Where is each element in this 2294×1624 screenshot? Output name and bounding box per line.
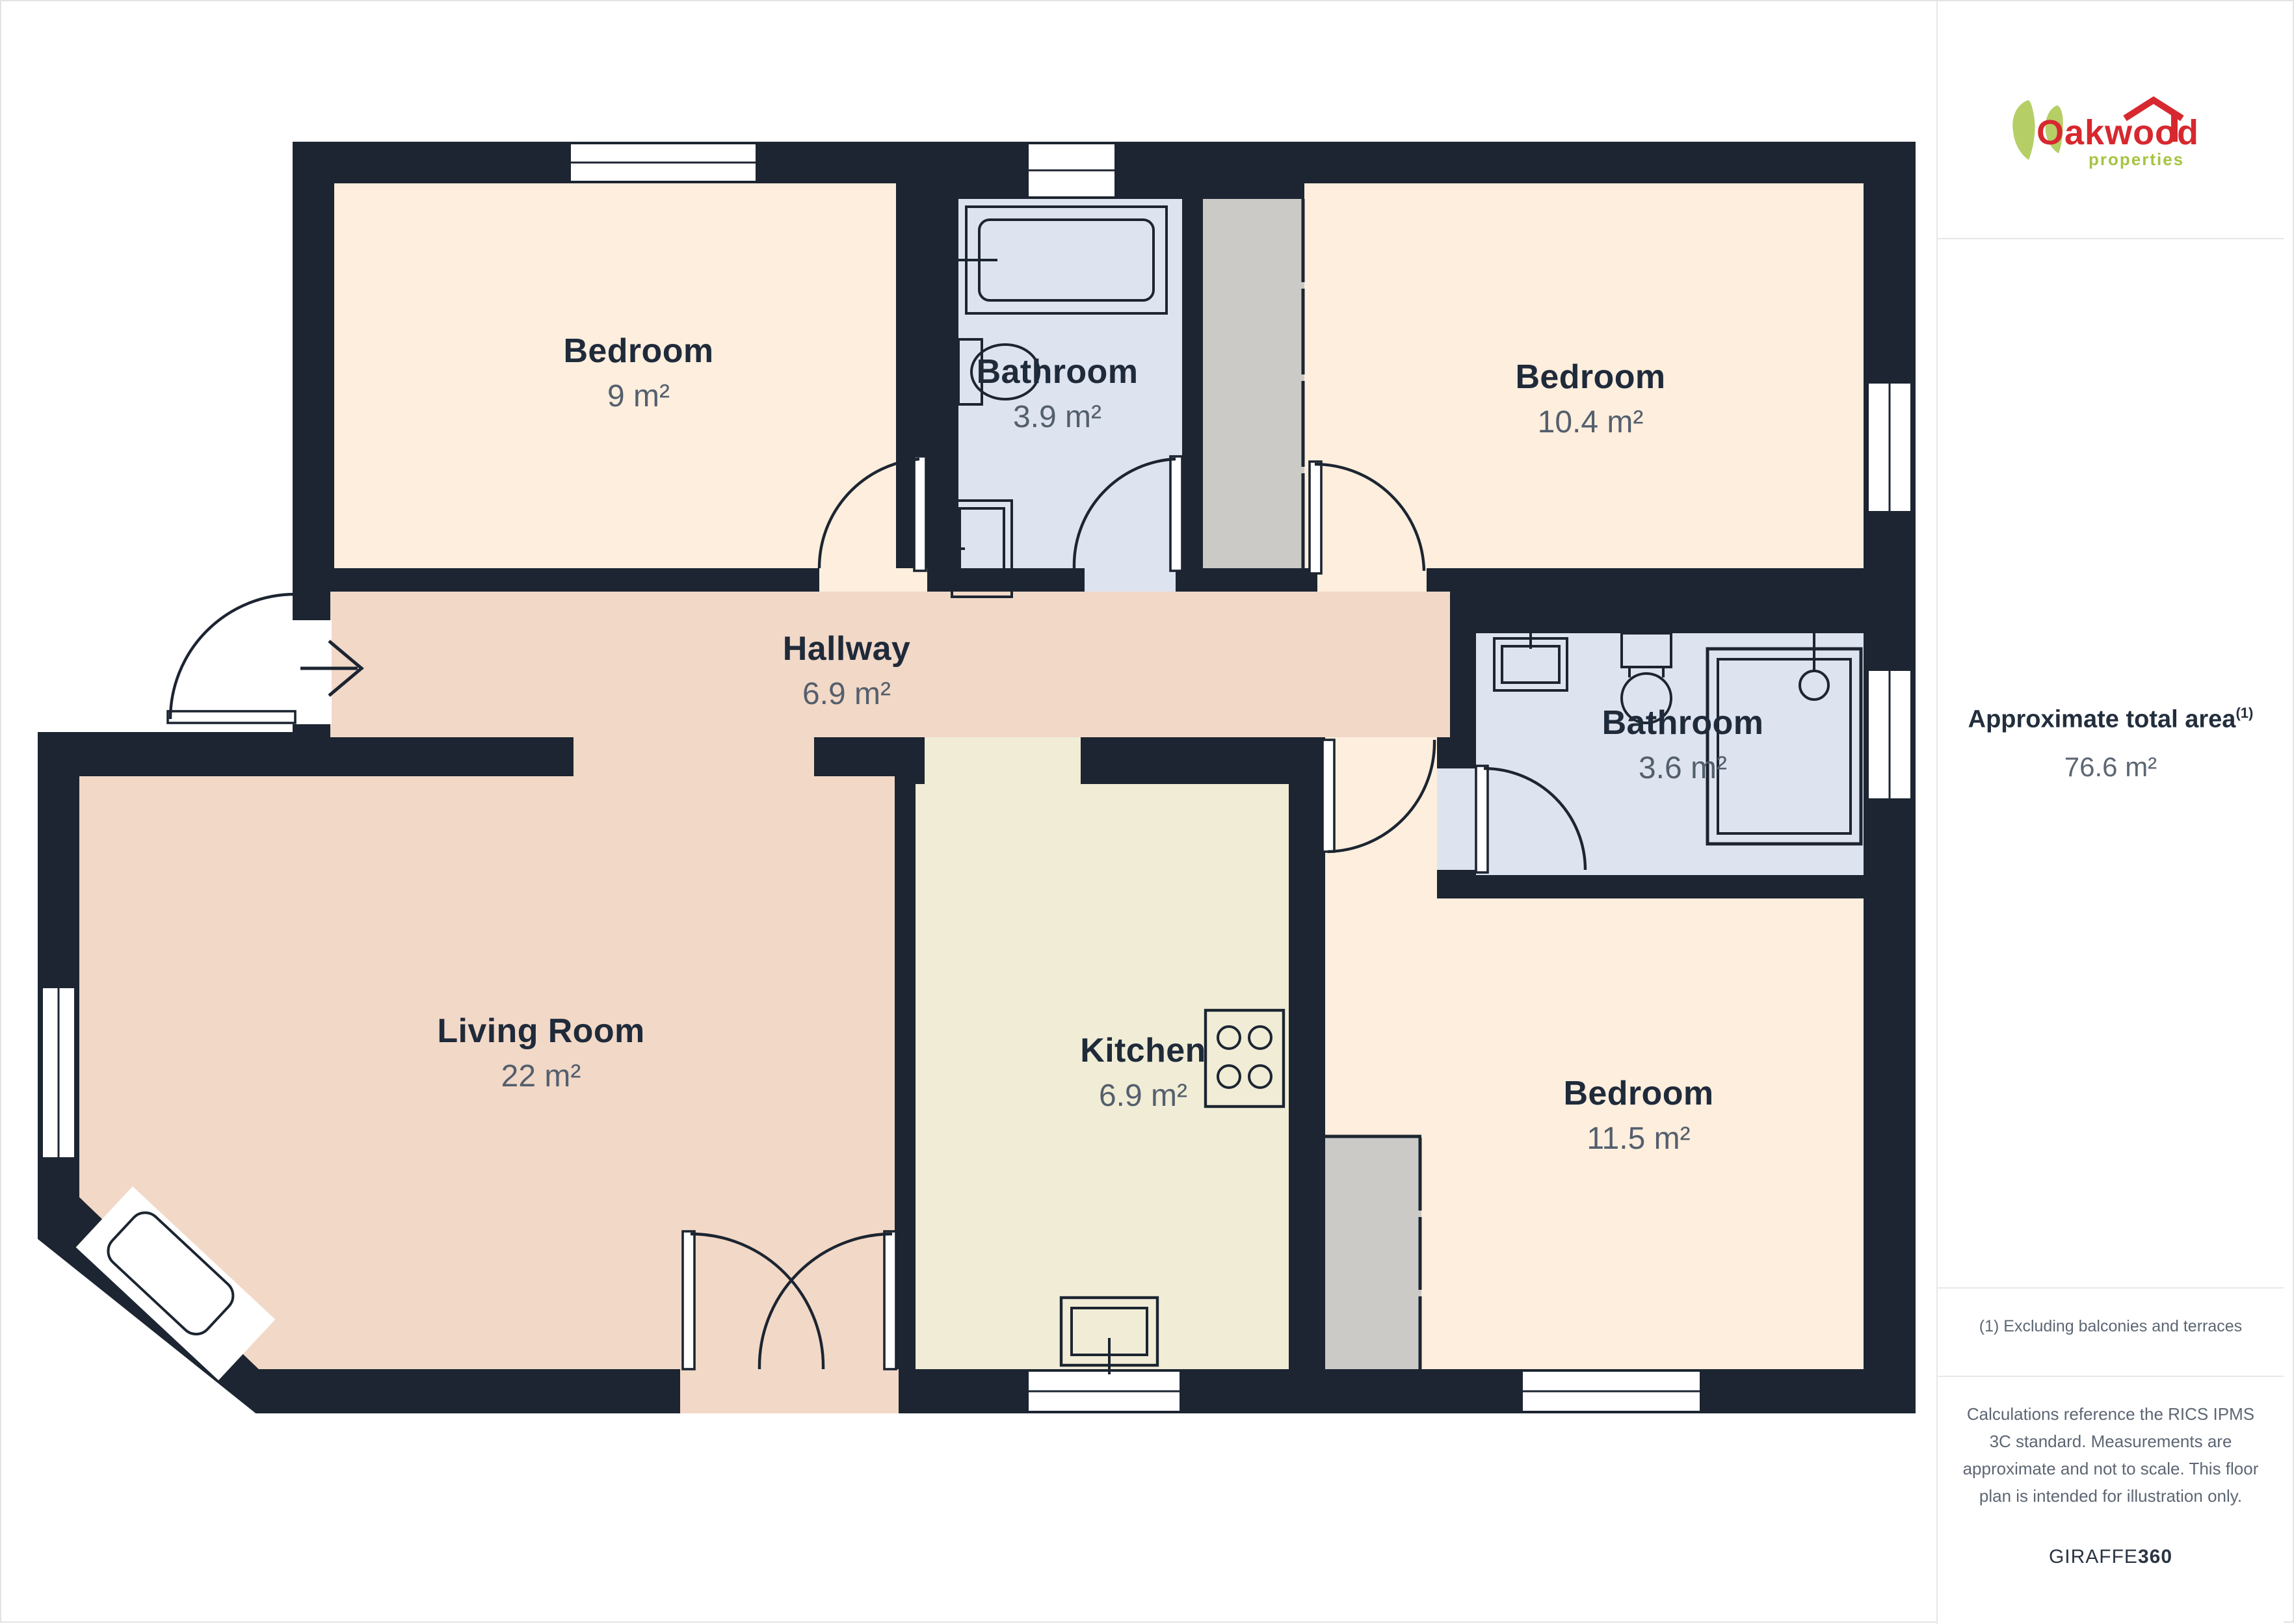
disclaimer-text: Calculations reference the RICS IPMS 3C … [1962, 1400, 2259, 1510]
room-bathroom-3-9 [958, 199, 1182, 568]
footnote-marker: (1) [2235, 706, 2253, 722]
logo-brand-text: Oakwood [2037, 113, 2199, 152]
giraffe360-credit: GIRAFFE360 [1938, 1546, 2284, 1568]
opening-hall-kitchen [925, 737, 1081, 787]
floorplan-page: Bedroom 9 m² Bathroom 3.9 m² Bedroom 10.… [0, 0, 2294, 1623]
doorway-bedroom-9 [819, 568, 927, 592]
total-area-title: Approximate total area(1) [1938, 706, 2284, 735]
window-bedroom-11-5 [1523, 1369, 1700, 1413]
room-hallway [330, 592, 1450, 737]
entry-door [168, 594, 295, 723]
shaft-top [1203, 199, 1304, 568]
sidebar: Oakwood properties Approximate total are… [1936, 1, 2284, 1624]
room-living [79, 776, 895, 1369]
doorway-bathroom-3-9 [1085, 568, 1176, 592]
doorway-bathroom-3-6 [1437, 768, 1476, 870]
window-bedroom-10-4 [1866, 384, 1913, 511]
footnote-text: (1) Excluding balconies and terraces [1938, 1317, 2284, 1335]
room-kitchen [916, 784, 1289, 1369]
window-kitchen [1029, 1369, 1180, 1413]
window-bedroom-9 [571, 142, 756, 183]
total-area-value: 76.6 m² [1938, 753, 2284, 784]
room-bedroom-10-4 [1304, 183, 1864, 568]
shaft-bottom [1325, 1135, 1421, 1369]
window-bathroom-3-6 [1866, 671, 1913, 798]
logo-sub-text: properties [2089, 150, 2184, 169]
nook-bedroom-11-5 [1325, 737, 1437, 898]
doorway-bedroom-10-4 [1317, 568, 1427, 592]
opening-hall-living [573, 737, 814, 779]
oakwood-properties-logo: Oakwood properties [2000, 90, 2221, 179]
window-bathroom-3-9 [1029, 142, 1114, 199]
room-bathroom-3-6 [1476, 633, 1864, 875]
room-bedroom-9 [334, 183, 896, 568]
sidebar-divider [1938, 1376, 2284, 1377]
sidebar-divider [1938, 1287, 2284, 1289]
doorway-entry [293, 620, 332, 724]
sidebar-divider [1938, 238, 2284, 239]
window-living-left [40, 988, 77, 1157]
doorway-living-terrace [680, 1369, 899, 1413]
